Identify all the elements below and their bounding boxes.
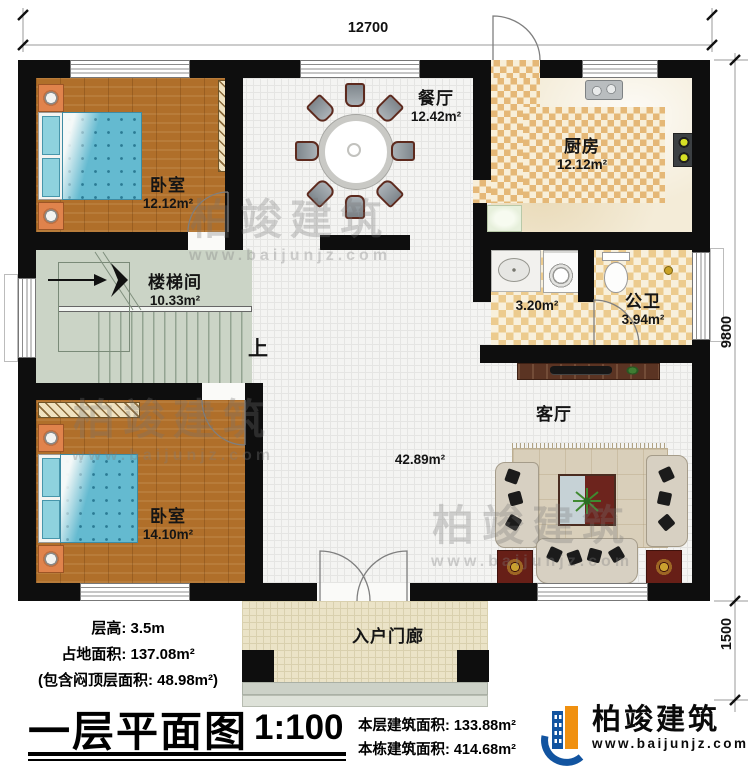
brand-url: www.baijunjz.com: [592, 736, 749, 751]
stair-up-label: 上: [244, 332, 272, 361]
dimension-top: 12700: [330, 20, 406, 36]
floor-height-note: 层高: 3.5m: [22, 616, 234, 642]
attic-note: (包含闷顶层面积: 48.98m²): [22, 668, 234, 694]
living-area-label: 42.89m²: [378, 452, 462, 467]
stairwell-label: 楼梯间 10.33m²: [133, 268, 217, 308]
porch-label: 入户门廊: [322, 622, 454, 647]
plan-notes: 层高: 3.5m 占地面积: 137.08m² (包含闷顶层面积: 48.98m…: [22, 616, 234, 694]
bedroom2-label: 卧室 14.10m²: [126, 502, 210, 542]
scale-label: 1:100: [254, 708, 344, 748]
stair-up-arrow: [48, 263, 128, 297]
dimension-porch: 1500: [719, 604, 735, 664]
brand-logo: 柏竣建筑 www.baijunjz.com: [538, 704, 749, 766]
title-underline-thin: [28, 759, 346, 761]
building-area-label: 本栋建筑面积: 414.68m²: [358, 738, 533, 762]
living-label: 客厅: [512, 400, 596, 425]
bedroom1-label: 卧室 12.12m²: [128, 171, 208, 211]
dimension-right: 9800: [719, 299, 735, 365]
wash-area-label: 3.20m²: [495, 298, 579, 313]
toilet-label: 公卫 3.94m²: [601, 287, 685, 327]
floor-plan: 柏竣建筑 www.baijunjz.com 柏竣建筑 www.baijunjz.…: [0, 0, 750, 776]
area-summary: 本层建筑面积: 133.88m² 本栋建筑面积: 414.68m²: [358, 714, 533, 762]
plan-title: 一层平面图: [28, 698, 248, 759]
dining-label: 餐厅 12.42m²: [394, 84, 478, 124]
brand-logo-icon: [538, 704, 586, 766]
title-underline: [28, 752, 346, 756]
brand-name: 柏竣建筑: [592, 704, 749, 736]
floor-area-label: 本层建筑面积: 133.88m²: [358, 714, 533, 738]
footprint-note: 占地面积: 137.08m²: [22, 642, 234, 668]
kitchen-label: 厨房 12.12m²: [540, 132, 624, 172]
